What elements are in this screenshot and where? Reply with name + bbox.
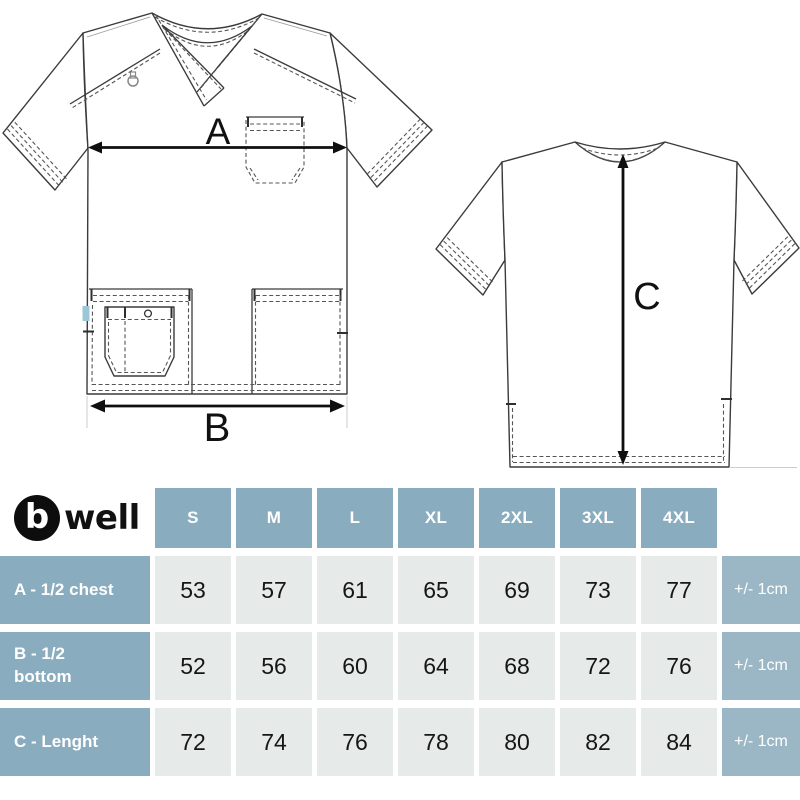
measurement-label-b: B	[204, 406, 231, 450]
table-cell: 73	[560, 556, 636, 624]
brand-logo: b well	[0, 488, 150, 548]
row-label-b-half-bottom: B - 1/2 bottom	[0, 632, 150, 700]
measurement-label-a: A	[206, 111, 231, 152]
table-cell: 57	[236, 556, 312, 624]
table-cell: 82	[560, 708, 636, 776]
side-tag	[83, 306, 90, 321]
size-header-m: M	[236, 488, 312, 548]
measurement-label-c: C	[633, 276, 660, 318]
size-header-3xl: 3XL	[560, 488, 636, 548]
table-cell: 69	[479, 556, 555, 624]
table-cell: 80	[479, 708, 555, 776]
table-cell: 56	[236, 632, 312, 700]
table-cell: 72	[560, 632, 636, 700]
back-right-sleeve	[734, 162, 799, 294]
tolerance-cell: +/- 1cm	[722, 708, 800, 776]
size-header-s: S	[155, 488, 231, 548]
size-header-l: L	[317, 488, 393, 548]
garment-diagram: A	[0, 0, 800, 486]
logo-letter-b: b	[25, 500, 49, 534]
table-cell: 60	[317, 632, 393, 700]
table-cell: 53	[155, 556, 231, 624]
table-cell: 65	[398, 556, 474, 624]
back-view-drawing: C	[436, 142, 799, 468]
table-cell: 77	[641, 556, 717, 624]
size-header-4xl: 4XL	[641, 488, 717, 548]
front-left-sleeve	[3, 33, 88, 190]
row-label-a-half-chest: A - 1/2 chest	[0, 556, 150, 624]
table-cell: 72	[155, 708, 231, 776]
row-label-c-length: C - Lenght	[0, 708, 150, 776]
bwell-logo-icon: b	[14, 495, 60, 541]
front-view-drawing: A	[3, 13, 432, 450]
table-cell: 64	[398, 632, 474, 700]
size-table: b well S M L XL 2XL 3XL 4XL A - 1/2 ches…	[0, 488, 800, 776]
table-cell: 74	[236, 708, 312, 776]
table-cell: 68	[479, 632, 555, 700]
logo-wordmark: well	[64, 501, 140, 535]
back-body	[502, 142, 737, 467]
table-cell: 61	[317, 556, 393, 624]
size-header-2xl: 2XL	[479, 488, 555, 548]
tolerance-cell: +/- 1cm	[722, 632, 800, 700]
table-cell: 84	[641, 708, 717, 776]
table-cell: 76	[641, 632, 717, 700]
table-cell: 76	[317, 708, 393, 776]
header-spacer	[722, 488, 800, 548]
tolerance-cell: +/- 1cm	[722, 556, 800, 624]
table-cell: 52	[155, 632, 231, 700]
measurement-arrow-b: B	[90, 400, 345, 451]
size-header-xl: XL	[398, 488, 474, 548]
table-cell: 78	[398, 708, 474, 776]
buttonhole-icon	[145, 310, 152, 317]
